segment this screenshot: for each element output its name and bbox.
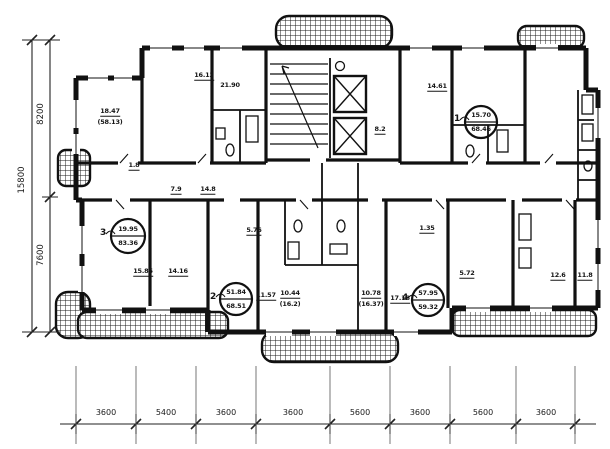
room-area-label: 7.9 [171, 186, 182, 195]
extension-lines [76, 366, 575, 444]
room-area-label: 15.85 [133, 268, 153, 277]
room-area-label: 12.6 [550, 272, 565, 281]
room-area-label: 17.18 [390, 295, 410, 304]
apartment-1-area-top: 15.70 [471, 112, 491, 119]
room-area-label: 1.35 [419, 225, 434, 234]
sink [288, 242, 299, 259]
balcony-bottom-right [452, 310, 596, 336]
room-area-label: 10.78 [361, 290, 381, 299]
dim-bottom-7: 5600 [473, 409, 493, 417]
apartment-2-area-bottom: 68.51 [226, 303, 246, 310]
dim-bottom-3: 3600 [216, 409, 236, 417]
room-area-label: 5.76 [246, 227, 261, 236]
sink [330, 244, 347, 254]
room-area-label: 10.44 [280, 290, 300, 299]
window-glazing-lines [76, 48, 598, 332]
toilet [337, 220, 345, 232]
room-area-note: (16.2) [280, 301, 301, 308]
apartment-2-number: 2 [210, 292, 216, 302]
vent-shaft [336, 62, 345, 71]
room-area-label: 16.13 [194, 72, 214, 81]
room-area-label: 14.16 [168, 268, 188, 277]
room-area-label: 1.8 [129, 162, 140, 171]
dim-left-lower: 7600 [37, 244, 46, 266]
room-area-label: 21.90 [220, 82, 240, 89]
balcony-bottom-center [262, 332, 398, 362]
apartment-3-area-bottom: 83.36 [118, 240, 138, 247]
room-area-label: 11.57 [256, 292, 276, 301]
apartment-1-area-bottom: 68.46 [471, 126, 491, 133]
room-area-label: 14.61 [427, 83, 447, 92]
floor-plan-scan: 15800 8200 7600 3600 5400 3600 3600 5600… [0, 0, 610, 449]
sink [519, 248, 531, 268]
apartment-area-circles [111, 106, 497, 316]
dim-bottom-4: 3600 [283, 409, 303, 417]
bathtub [582, 95, 593, 114]
dim-bottom-2: 5400 [156, 409, 176, 417]
dim-bottom-6: 3600 [410, 409, 430, 417]
room-area-label: 8.2 [375, 126, 386, 135]
sink [582, 124, 593, 141]
toilet [226, 144, 234, 156]
exterior-walls [76, 48, 598, 332]
dim-bottom-1: 3600 [96, 409, 116, 417]
toilet [466, 145, 474, 157]
apartment-3-area-top: 19.95 [118, 226, 138, 233]
room-area-label: 11.8 [577, 272, 592, 281]
balcony-top-center [276, 16, 392, 48]
elevator-shafts [334, 62, 366, 155]
bathtub [497, 130, 508, 152]
dimension-lines [22, 35, 596, 444]
room-area-label: 14.8 [200, 186, 215, 195]
apartment-2-area-top: 51.84 [226, 289, 246, 296]
toilet [294, 220, 302, 232]
apartment-4-area-bottom: 59.32 [418, 304, 438, 311]
bathtub [519, 214, 531, 240]
dim-left-total: 15800 [18, 166, 27, 193]
room-area-label: 18.47 [100, 108, 120, 117]
staircase [270, 64, 328, 148]
interior-walls [76, 48, 598, 332]
room-area-label: 5.72 [459, 270, 474, 279]
apartment-3-number: 3 [100, 228, 106, 238]
bathtub [246, 116, 258, 142]
room-area-note: (58.13) [97, 119, 122, 126]
dim-bottom-8: 3600 [536, 409, 556, 417]
room-area-note: (16.37) [358, 301, 383, 308]
floor-plan-drawing [0, 0, 610, 449]
dim-bottom-5: 5600 [350, 409, 370, 417]
apartment-4-area-top: 57.95 [418, 290, 438, 297]
dim-left-upper: 8200 [37, 103, 46, 125]
sink [216, 128, 225, 139]
apartment-1-number: 1 [454, 114, 460, 124]
fixtures [216, 95, 593, 268]
